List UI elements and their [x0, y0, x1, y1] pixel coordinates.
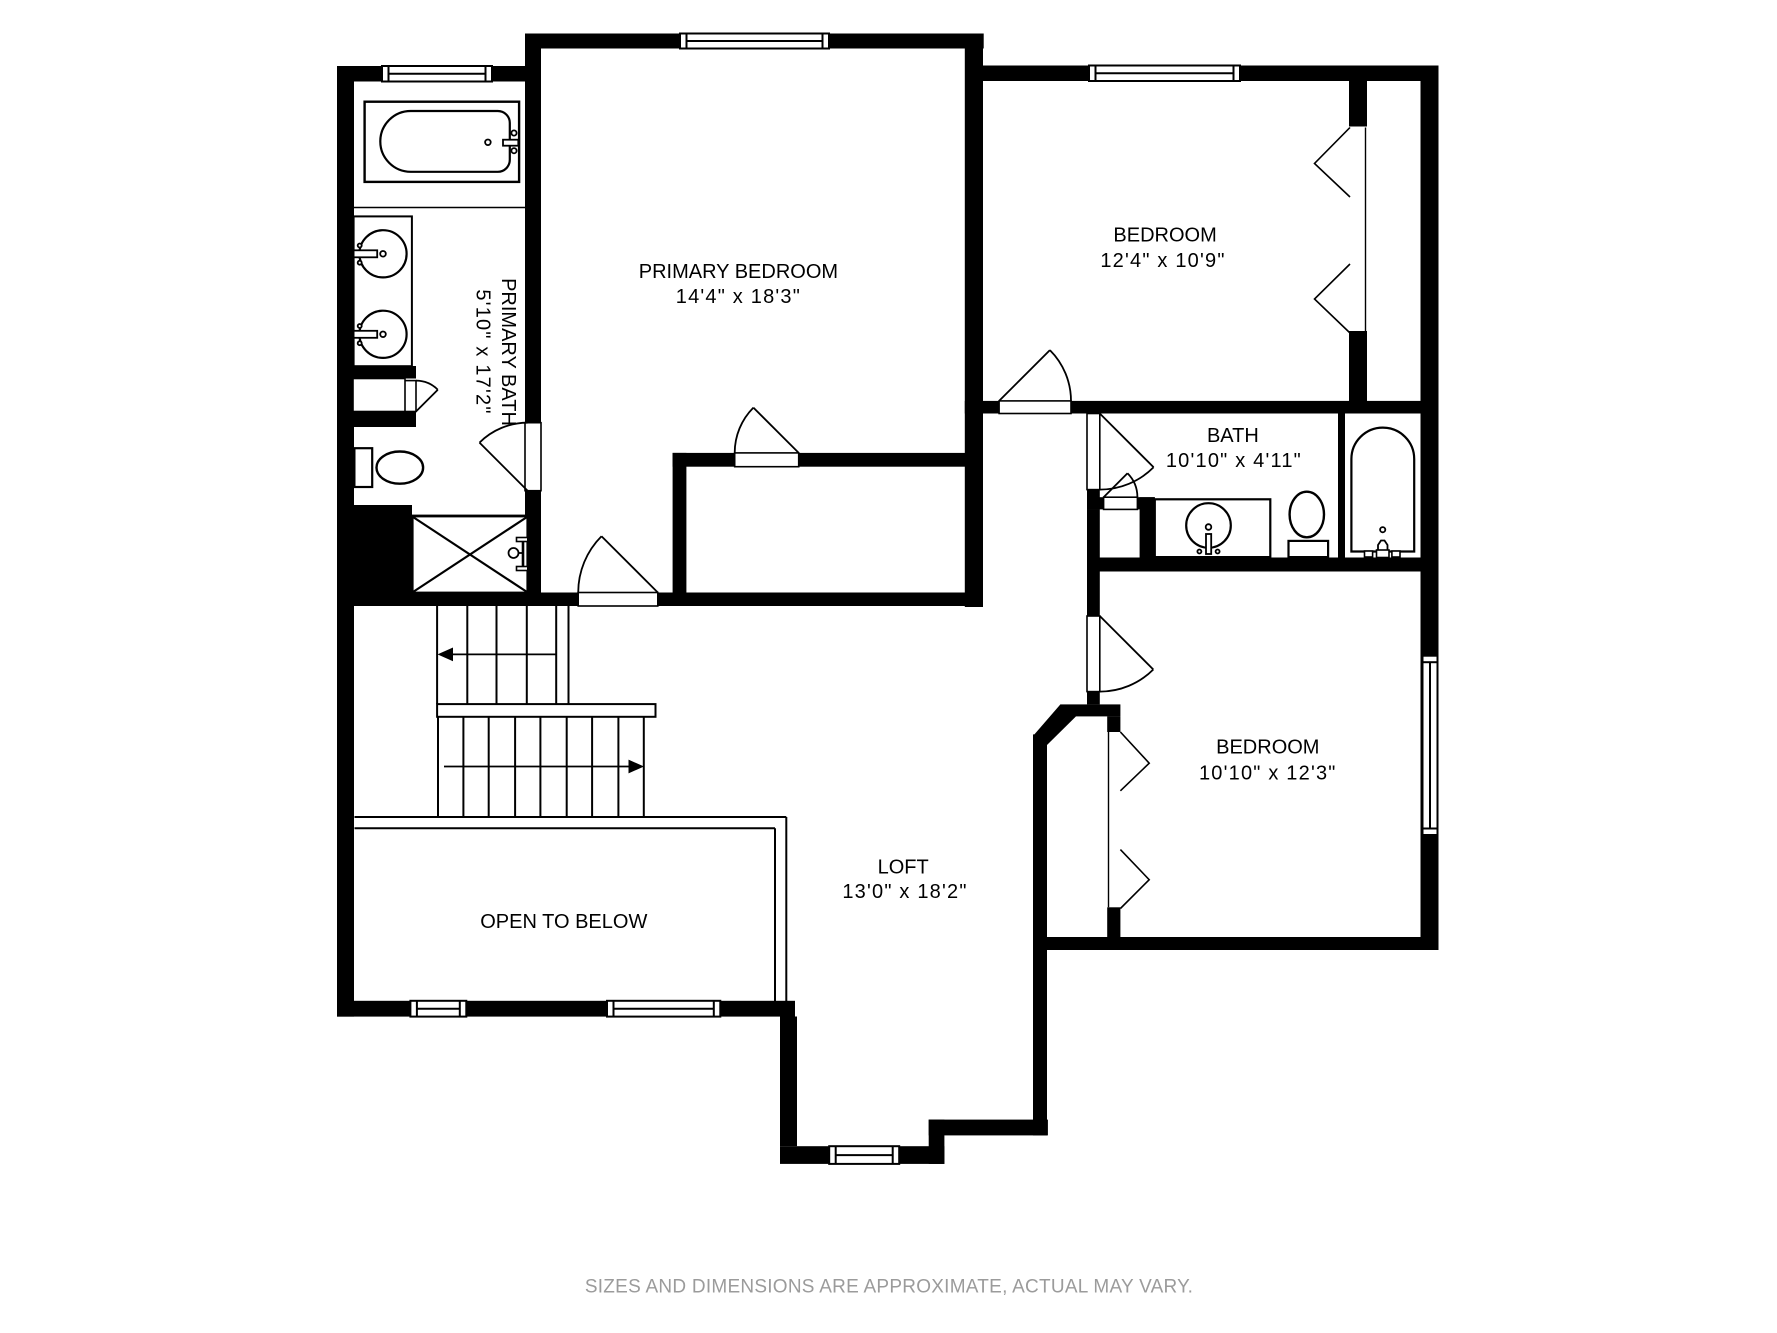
svg-text:12'4" x 10'9": 12'4" x 10'9"	[1100, 250, 1225, 272]
svg-text:BATH: BATH	[1207, 425, 1259, 447]
svg-text:10'10" x 12'3": 10'10" x 12'3"	[1199, 763, 1337, 785]
svg-text:10'10" x 4'11": 10'10" x 4'11"	[1166, 450, 1302, 472]
svg-text:5'10" x 17'2": 5'10" x 17'2"	[472, 289, 494, 414]
svg-text:13'0" x 18'2": 13'0" x 18'2"	[842, 881, 967, 903]
svg-text:14'4" x 18'3": 14'4" x 18'3"	[676, 286, 801, 308]
svg-text:PRIMARY BEDROOM: PRIMARY BEDROOM	[639, 261, 838, 283]
svg-text:PRIMARY BATH: PRIMARY BATH	[497, 278, 519, 426]
svg-text:SIZES AND DIMENSIONS ARE APPRO: SIZES AND DIMENSIONS ARE APPROXIMATE, AC…	[585, 1277, 1193, 1298]
svg-text:LOFT: LOFT	[878, 856, 929, 878]
svg-text:BEDROOM: BEDROOM	[1216, 736, 1319, 758]
svg-text:OPEN TO BELOW: OPEN TO BELOW	[480, 911, 647, 933]
svg-text:BEDROOM: BEDROOM	[1113, 225, 1216, 247]
